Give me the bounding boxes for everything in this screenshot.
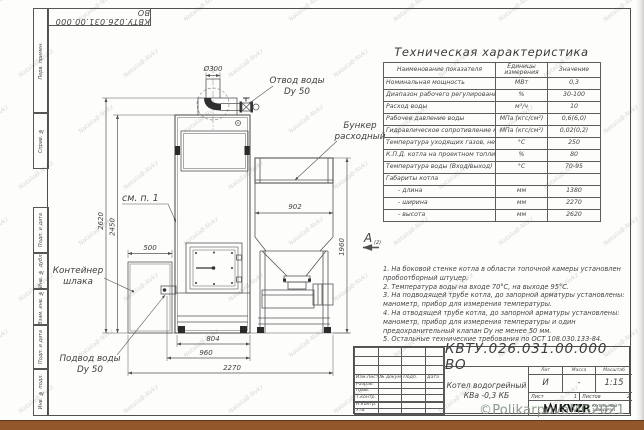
- spec-header-row: Наименование показателя Единицы измерени…: [384, 63, 601, 78]
- scale-value: 1:15: [596, 375, 632, 393]
- table-row: Рабочее давление водыМПа (кгс/см²)0,6(6,…: [384, 114, 601, 126]
- label-see-item-1: см. п. 1: [122, 193, 159, 204]
- spec-value: 1380: [548, 186, 601, 198]
- sheets-cell: Листов2: [580, 393, 632, 401]
- drawing-sheet: NataliaB-NvkzNataliaB-NvkzNataliaB-NvkzN…: [0, 0, 644, 430]
- scale-header: Масштаб: [596, 367, 632, 375]
- spec-units: МПа (кгс/см²): [496, 114, 548, 126]
- spec-name: К.П.Д. котла на проектном топливе: [384, 150, 496, 162]
- mass-header: Масса: [563, 367, 596, 375]
- lit-header: Лит: [529, 367, 563, 375]
- row-n-kontr: Н.контр.: [355, 402, 379, 408]
- spec-units: МВт: [496, 78, 548, 90]
- dim-960: 960: [199, 349, 213, 357]
- dim-2620: 2620: [97, 212, 105, 230]
- table-row: Номинальная мощностьМВт0,3: [384, 78, 601, 90]
- spec-units: °С: [496, 138, 548, 150]
- label-bunker-line2: расходный: [334, 132, 386, 142]
- spec-units: %: [496, 150, 548, 162]
- spec-units: [496, 174, 548, 186]
- table-row: Температура уходящих газов, не более°С25…: [384, 138, 601, 150]
- product-name-line2: КВа -0,3 КБ: [464, 391, 510, 401]
- col-izm-list: Изм.Лист: [355, 375, 379, 383]
- spec-value: 2620: [548, 210, 601, 222]
- title-block-revision-grid: Изм.Лист № докум. Подп. Дата Разраб. Про…: [354, 347, 444, 415]
- label-water-inlet-line1: Подвод воды: [59, 354, 120, 364]
- spec-value: 0,3: [548, 78, 601, 90]
- dim-2270: 2270: [223, 364, 241, 372]
- spec-name: Температура уходящих газов, не более: [384, 138, 496, 150]
- spec-value: 2270: [548, 198, 601, 210]
- spec-units: °С: [496, 162, 548, 174]
- table-row: - ширинамм2270: [384, 198, 601, 210]
- spec-value: 80: [548, 150, 601, 162]
- label-water-inlet-line2: Dy 50: [77, 365, 103, 375]
- spec-units: мм: [496, 210, 548, 222]
- col-podp: Подп.: [402, 375, 426, 383]
- spec-name: - ширина: [384, 198, 496, 210]
- paper-right-edge: [636, 0, 644, 430]
- dim-diameter-300: Ø300: [203, 65, 223, 73]
- doc-number: КВТУ.026.031.00.000 ВО: [444, 347, 631, 367]
- spec-name: Рабочее давление воды: [384, 114, 496, 126]
- mass-value: -: [563, 375, 596, 393]
- spec-value: 250: [548, 138, 601, 150]
- table-row: Расход водым³/ч10: [384, 102, 601, 114]
- spec-name: Гидравлическое сопротивление котла: [384, 126, 496, 138]
- row-t-kontr: Т.контр.: [355, 395, 379, 401]
- sheet-cell: Лист1: [529, 393, 580, 401]
- copyright-watermark: ©PolikarpovaMG2021: [479, 403, 625, 418]
- spec-units: %: [496, 90, 548, 102]
- spec-col-value: Значение: [548, 63, 601, 78]
- technical-notes: 1. На боковой стенке котла в области топ…: [383, 265, 629, 344]
- table-row: Температура воды (Вход/выход)°С70-95: [384, 162, 601, 174]
- view-a-sheet-ref: (2): [374, 240, 381, 246]
- table-row: - высотамм2620: [384, 210, 601, 222]
- table-row: Диапазон рабочего регулирования%30-100: [384, 90, 601, 102]
- dim-2450: 2450: [109, 218, 117, 236]
- note-4: 4. На отводящей трубе котла, до запорной…: [383, 309, 629, 335]
- dim-804: 804: [206, 335, 219, 343]
- spec-units: мм: [496, 198, 548, 210]
- table-surface-edge: [0, 420, 644, 430]
- col-n-dokum: № докум.: [378, 375, 402, 383]
- spec-name: Номинальная мощность: [384, 78, 496, 90]
- label-water-outlet-line2: Dy 50: [284, 87, 310, 97]
- dim-902: 902: [288, 203, 302, 211]
- spec-name: - высота: [384, 210, 496, 222]
- dim-500: 500: [143, 244, 157, 252]
- spec-value: 70-95: [548, 162, 601, 174]
- spec-name: Расход воды: [384, 102, 496, 114]
- label-slag-container-line1: Контейнер: [53, 266, 104, 276]
- table-row: К.П.Д. котла на проектном топливе%80: [384, 150, 601, 162]
- spec-col-units: Единицы измерения: [496, 63, 548, 78]
- table-row: - длинамм1380: [384, 186, 601, 198]
- note-2: 2. Температура воды на входе 70°С, на вы…: [383, 283, 629, 292]
- spec-col-name: Наименование показателя: [384, 63, 496, 78]
- spec-units: мм: [496, 186, 548, 198]
- spec-units: МПа (кгс/см²): [496, 126, 548, 138]
- spec-name: Габариты котла: [384, 174, 496, 186]
- spec-name: Диапазон рабочего регулирования: [384, 90, 496, 102]
- row-utv: Утв.: [355, 408, 379, 414]
- col-data: Дата: [426, 375, 444, 383]
- note-3: 3. На подводящей трубе котла, до запорно…: [383, 291, 629, 309]
- spec-value: 30-100: [548, 90, 601, 102]
- label-slag-container-line2: шлака: [63, 277, 93, 287]
- label-bunker-line1: Бункер: [343, 121, 377, 131]
- spec-table-title: Техническая характеристика: [383, 45, 600, 59]
- product-name-line1: Котел водогрейный: [447, 381, 527, 391]
- table-row: Гидравлическое сопротивление котлаМПа (к…: [384, 126, 601, 138]
- table-row: Габариты котла: [384, 174, 601, 186]
- spec-value: 0,6(6,0): [548, 114, 601, 126]
- view-a-label: А: [363, 231, 372, 245]
- spec-value: 0,02(0,2): [548, 126, 601, 138]
- note-1: 1. На боковой стенке котла в области топ…: [383, 265, 629, 283]
- spec-value: 10: [548, 102, 601, 114]
- dim-1960: 1960: [338, 238, 346, 256]
- label-water-outlet-line1: Отвод воды: [269, 76, 324, 86]
- spec-table: Наименование показателя Единицы измерени…: [383, 62, 601, 222]
- spec-units: м³/ч: [496, 102, 548, 114]
- spec-name: Температура воды (Вход/выход): [384, 162, 496, 174]
- lit-value: И: [529, 375, 563, 393]
- spec-value: [548, 174, 601, 186]
- spec-name: - длина: [384, 186, 496, 198]
